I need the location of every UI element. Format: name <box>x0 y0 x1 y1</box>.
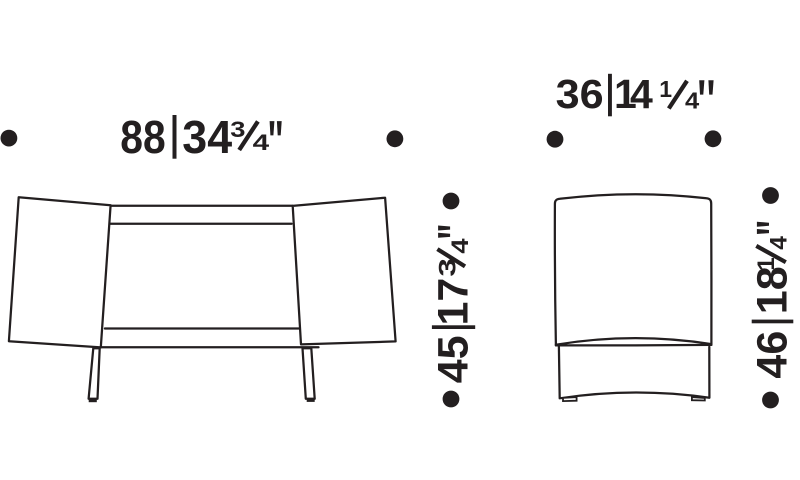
svg-text:18: 18 <box>748 266 796 314</box>
svg-text:17: 17 <box>429 278 477 326</box>
svg-text:45: 45 <box>429 335 477 383</box>
svg-text:1: 1 <box>753 257 780 270</box>
svg-text:88: 88 <box>120 111 165 163</box>
svg-text:1: 1 <box>659 76 672 102</box>
svg-text:4: 4 <box>447 238 474 254</box>
svg-text:4: 4 <box>630 71 653 117</box>
svg-text:4: 4 <box>765 235 792 249</box>
svg-text:4: 4 <box>685 88 699 114</box>
svg-text:36: 36 <box>556 71 604 117</box>
svg-text:46: 46 <box>748 331 796 379</box>
svg-text:34: 34 <box>182 111 232 163</box>
svg-text:4: 4 <box>253 130 270 155</box>
svg-text:3: 3 <box>230 117 245 142</box>
